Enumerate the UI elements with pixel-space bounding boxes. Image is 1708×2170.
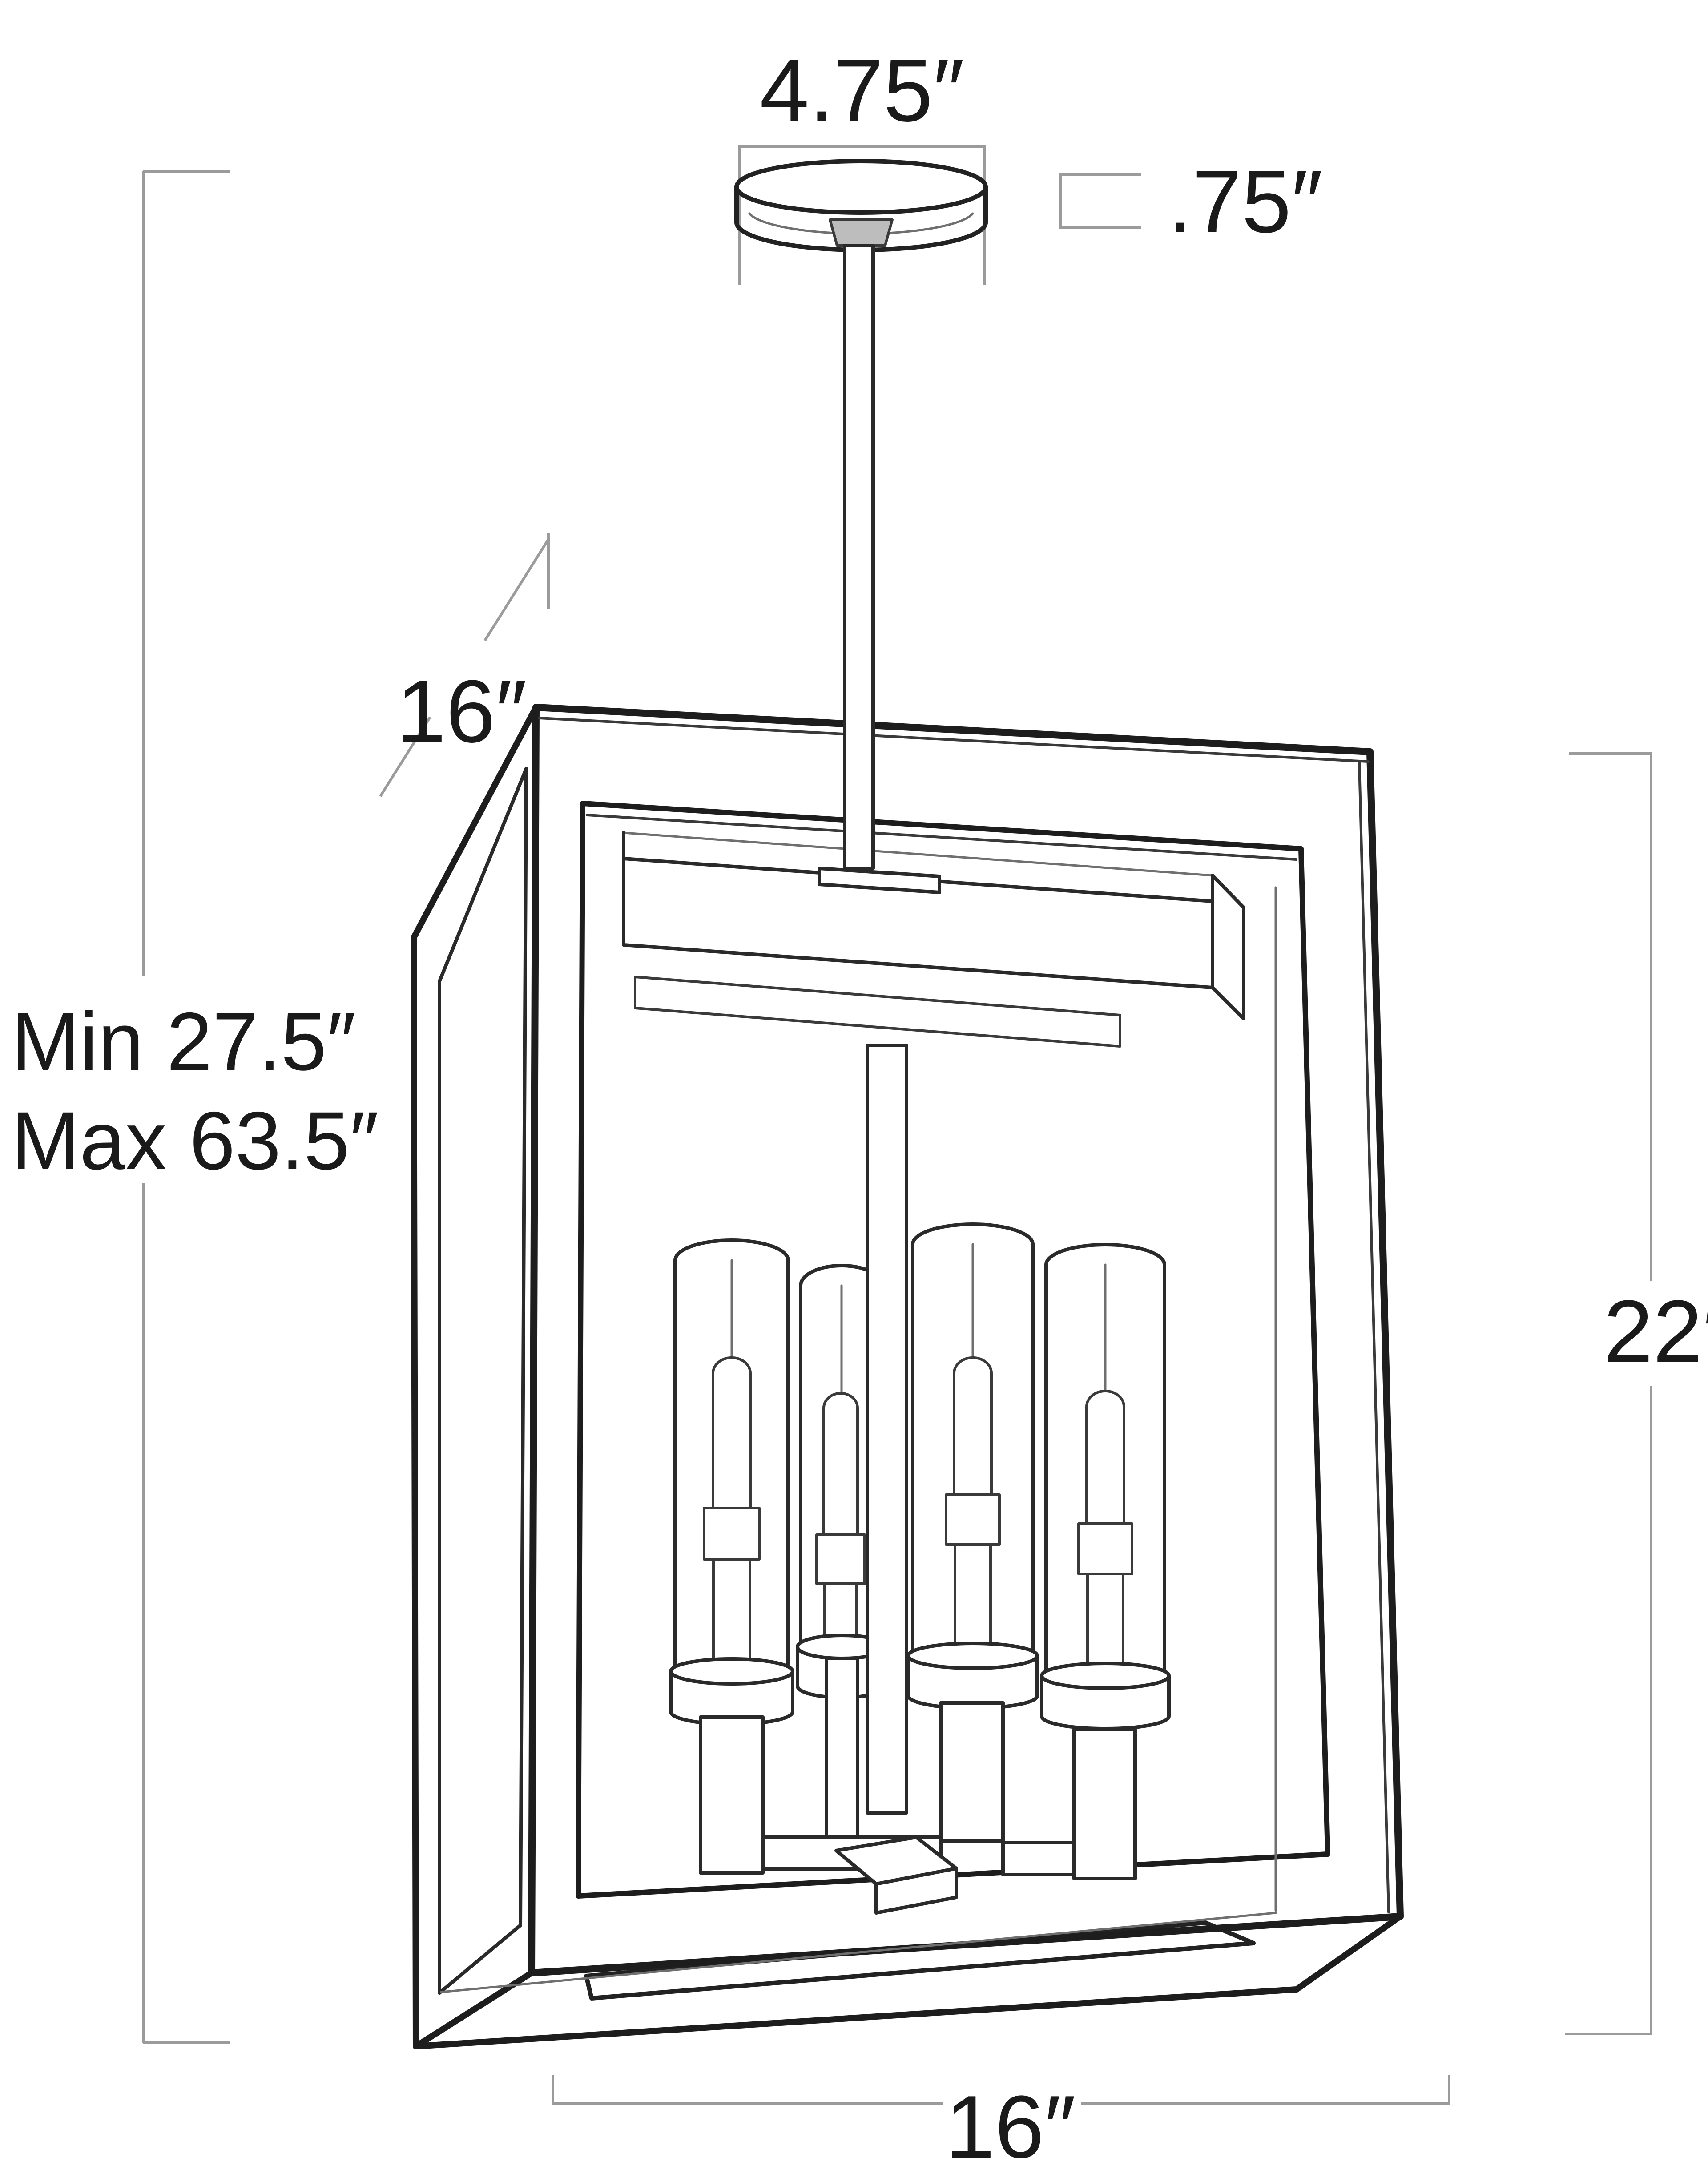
pendant-dimension-diagram: 4.75″ .75″ 16″ Min 27.5″ Max 63.5″ 22″ 1… [0, 0, 1708, 2170]
candle-cluster [671, 1045, 1169, 1913]
body-height-label: 22″ [1603, 1282, 1708, 1381]
height-range-min-label: Min 27.5″ [11, 996, 356, 1088]
holder-ring-top [1042, 1663, 1169, 1688]
holder-ring-top [908, 1643, 1037, 1668]
bulb [1087, 1391, 1124, 1524]
candle-post [701, 1717, 763, 1873]
bulb-socket [1079, 1524, 1132, 1574]
bulb-socket [946, 1495, 999, 1545]
socket-neck [955, 1545, 991, 1655]
candle-post [826, 1658, 858, 1836]
collar-band [624, 833, 1244, 1019]
depth-label: 16″ [396, 662, 527, 761]
candle-3 [908, 1224, 1037, 1841]
bulb [954, 1358, 991, 1495]
body-width-label: 16″ [945, 2077, 1076, 2170]
stem-rod [845, 246, 873, 868]
socket-neck [1088, 1574, 1123, 1675]
candle-post [1074, 1730, 1135, 1879]
bulb [824, 1393, 858, 1535]
socket-neck [713, 1559, 750, 1670]
bulb-socket [817, 1535, 865, 1584]
canopy-width-label: 4.75″ [760, 41, 964, 140]
candle-4 [1042, 1245, 1169, 1879]
internal-top-collar [624, 833, 1244, 1046]
collar-lower-ring [635, 977, 1120, 1046]
height-range-max-label: Max 63.5″ [11, 1095, 379, 1187]
bulb-socket [704, 1508, 759, 1559]
bulb [713, 1358, 750, 1508]
stem-collar [830, 220, 892, 246]
candle-1 [671, 1240, 793, 1873]
arm-right-bar [1003, 1843, 1074, 1875]
frame-left-face-inner [439, 769, 526, 1993]
central-column [867, 1045, 906, 1813]
frame-left-face [414, 707, 536, 2046]
canopy-height-dimension-line [1060, 174, 1141, 228]
canopy-assembly [737, 161, 986, 892]
holder-ring-top [671, 1659, 793, 1684]
stem-mount-plate [819, 868, 939, 892]
body-height-dimension-line [1565, 754, 1651, 2034]
diagram-canvas: 4.75″ .75″ 16″ Min 27.5″ Max 63.5″ 22″ 1… [0, 0, 1708, 2170]
canopy-height-label: .75″ [1168, 152, 1323, 251]
canopy-top [737, 161, 986, 213]
candelabra-arms [763, 1837, 1074, 1913]
candle-post [941, 1703, 1003, 1841]
